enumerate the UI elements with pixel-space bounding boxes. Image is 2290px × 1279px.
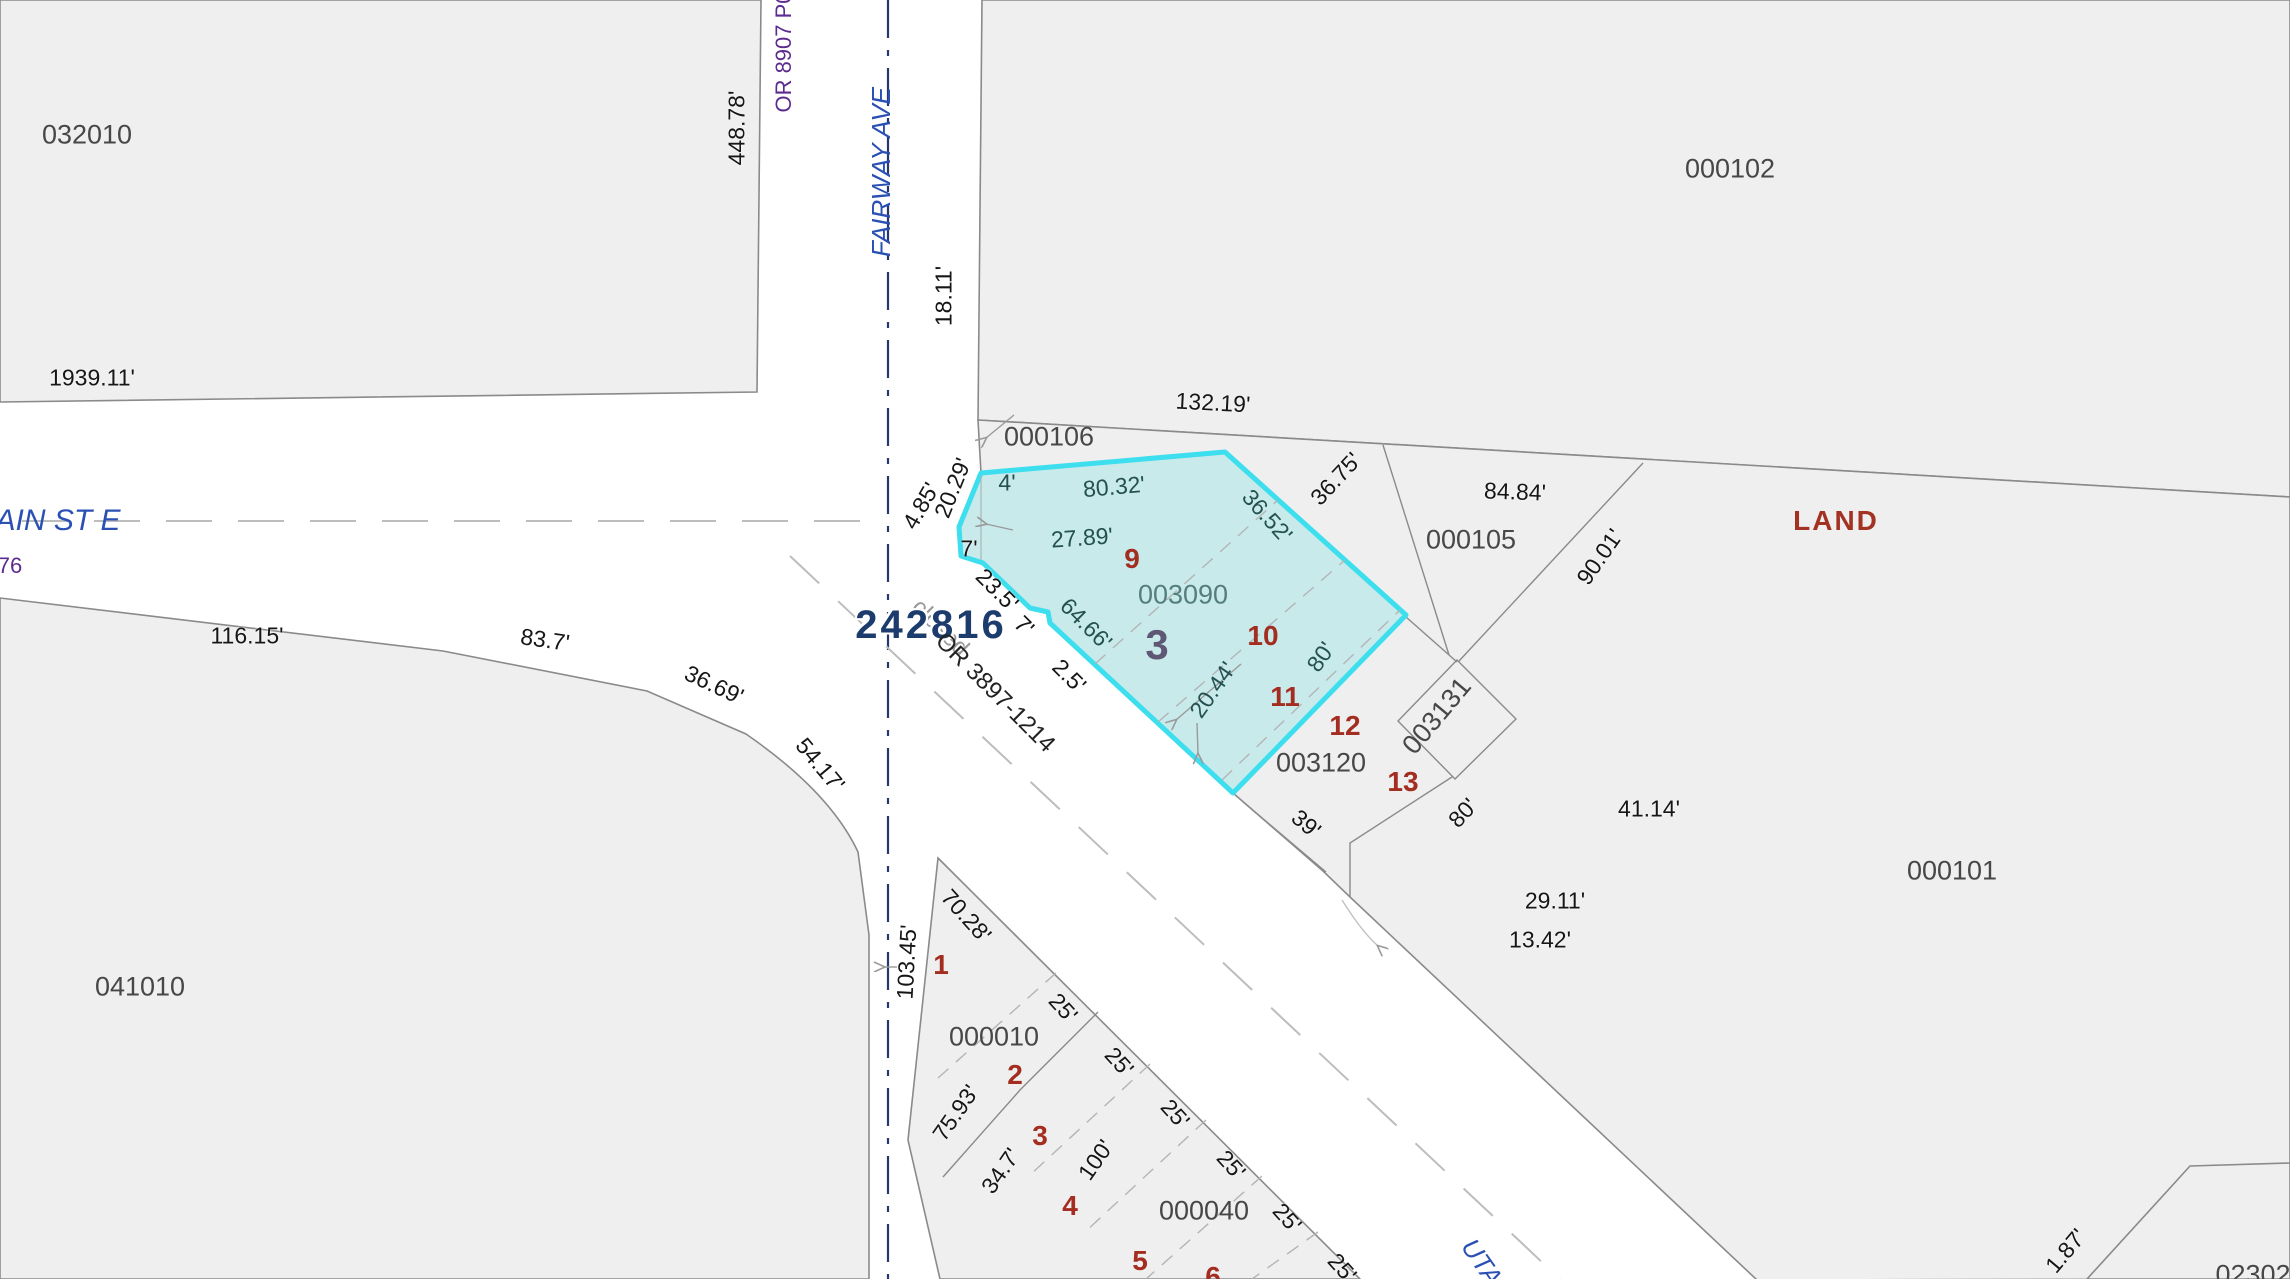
dimension-label-25: 25' (1044, 989, 1081, 1027)
lot-number-4: 4 (1062, 1192, 1078, 1220)
dimension-label-2789: 27.89' (1050, 524, 1113, 551)
dimension-label-4114: 41.14' (1618, 798, 1680, 821)
dimension-label-3675: 36.75' (1306, 449, 1365, 510)
record-ref-or38971214: OR 3897-1214 (931, 629, 1059, 757)
lot-number-10: 10 (1247, 622, 1278, 650)
land-note: LAND (1793, 507, 1879, 535)
dimension-label-10345: 103.45' (894, 924, 921, 1000)
dimension-label-347: 34.7' (977, 1144, 1024, 1197)
lot-number-2: 2 (1007, 1061, 1023, 1089)
selected-parcel-account: 242816 (855, 605, 1006, 645)
dimension-label-837: 83.7' (519, 625, 571, 655)
parcel-label-032010: 032010 (42, 122, 132, 149)
dimension-label-2911: 29.11' (1525, 890, 1585, 913)
dimension-label-25: 25' (1323, 1249, 1360, 1279)
parcel-label-003131: 003131 (1398, 673, 1477, 759)
dimension-label-25: 25' (1268, 1199, 1305, 1237)
dimension-label-7593: 75.93' (929, 1081, 983, 1145)
dimension-label-9001: 90.01' (1573, 525, 1627, 589)
lot-number-1: 1 (933, 951, 949, 979)
dimension-label-2029: 20.29' (931, 455, 976, 521)
parcel-label-000010: 000010 (949, 1024, 1039, 1051)
dimension-label-13219: 132.19' (1175, 390, 1251, 417)
lot-number-11: 11 (1270, 683, 1300, 711)
parcel-label-003090-selected: 003090 (1138, 582, 1228, 609)
parcel-label-000105: 000105 (1426, 527, 1516, 554)
dimension-label-8032: 80.32' (1082, 473, 1146, 501)
street-name-main-st-e: AIN ST E (0, 506, 121, 536)
dimension-label-44878: 448.78' (726, 91, 749, 166)
record-ref-or8907p0: OR 8907 P0 (773, 0, 795, 113)
lot-number-9: 9 (1124, 545, 1140, 573)
dimension-label-11615: 116.15' (210, 625, 283, 648)
lot-number-12: 12 (1329, 712, 1360, 740)
parcel-label-000106: 000106 (1004, 424, 1094, 451)
parcel-label-000040: 000040 (1159, 1198, 1249, 1225)
lot-number-5: 5 (1132, 1247, 1148, 1275)
dimension-label-193911: 1939.11' (49, 367, 135, 390)
parcel-label-000101: 000101 (1907, 858, 1997, 885)
dimension-label-3652: 36.52' (1238, 485, 1297, 546)
dimension-label-100: 100' (1074, 1136, 1117, 1184)
dimension-label-25: 2.5' (1048, 655, 1090, 697)
dimension-label-25: 25' (1156, 1095, 1193, 1133)
dimension-label-5417: 54.17' (791, 734, 848, 796)
lot-number-6: 6 (1205, 1263, 1221, 1279)
dimension-label-25: 25' (1212, 1146, 1249, 1184)
dimension-label-1342: 13.42' (1509, 929, 1571, 952)
dimension-label-1811: 18.11' (933, 266, 956, 326)
dimension-label-39: 39' (1287, 806, 1325, 843)
dimension-label-187: 1.87' (2041, 1225, 2090, 1277)
dimension-label-8484: 84.84' (1484, 479, 1547, 504)
dimension-label-2044: 20.44' (1186, 658, 1240, 722)
dimension-label-25: 25' (1100, 1043, 1137, 1081)
parcel-label-02302: 02302 (2215, 1262, 2290, 1279)
street-name-utah-ave: UTA (1457, 1234, 1507, 1279)
parcel-label-003120: 003120 (1276, 750, 1366, 777)
lot-number-3: 3 (1032, 1122, 1048, 1150)
record-ref-76: 76 (0, 555, 22, 577)
parcel-label-041010: 041010 (95, 974, 185, 1001)
parcel-map-canvas[interactable]: 0320100001021939.11'448.78'OR 8907 P0FAI… (0, 0, 2290, 1279)
dimension-label-7: 7' (1010, 612, 1038, 640)
dimension-label-3669: 36.69' (681, 661, 747, 708)
lot-number-13: 13 (1387, 768, 1418, 796)
dimension-label-80: 80' (1303, 638, 1339, 676)
block-number-3: 3 (1145, 624, 1168, 666)
dimension-label-6466: 64.66' (1056, 594, 1116, 654)
dimension-label-7028: 70.28' (937, 885, 996, 946)
dimension-label-4: 4' (998, 472, 1015, 495)
map-labels-layer: 0320100001021939.11'448.78'OR 8907 P0FAI… (0, 0, 2290, 1279)
dimension-label-80: 80' (1444, 794, 1481, 832)
street-name-fairway-ave: FAIRWAY AVE (868, 87, 894, 257)
dimension-label-7: 7' (960, 538, 977, 561)
parcel-label-000102: 000102 (1685, 156, 1775, 183)
